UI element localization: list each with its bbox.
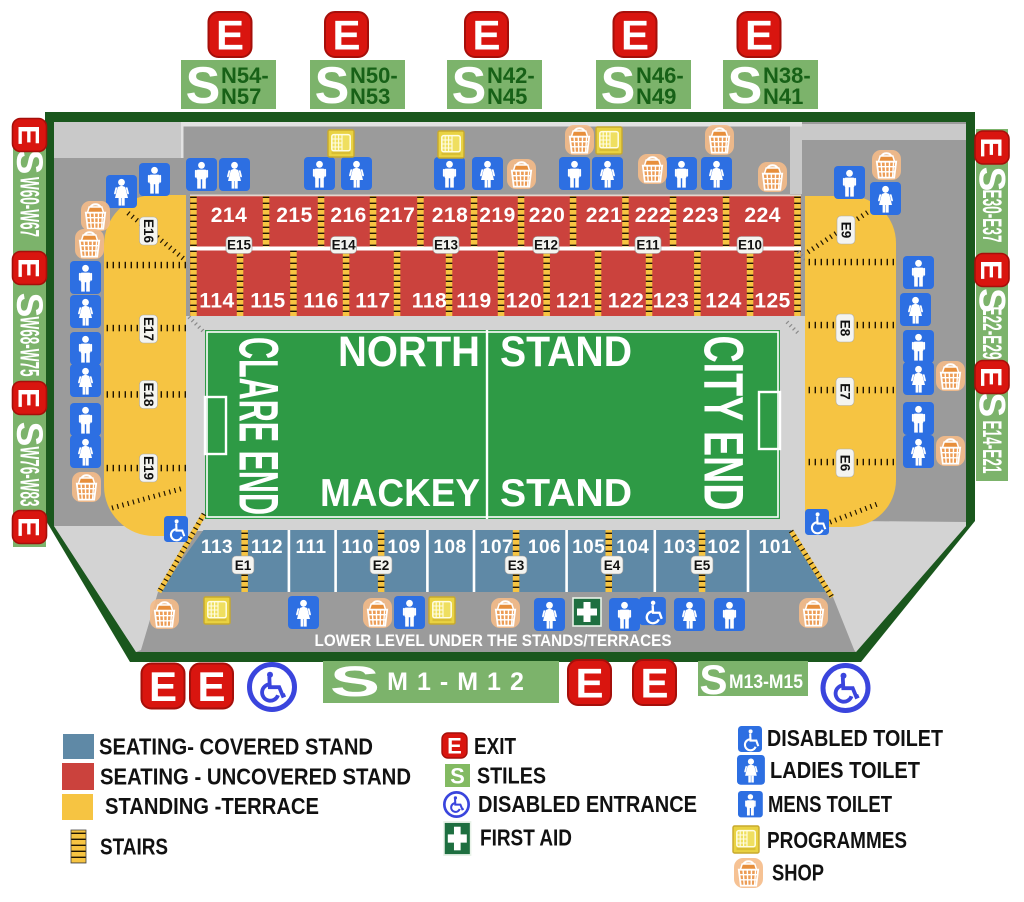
svg-text:E5: E5: [694, 558, 711, 573]
svg-text:N41: N41: [763, 84, 803, 109]
svg-text:PROGRAMMES: PROGRAMMES: [767, 827, 907, 853]
svg-text:W68-W75: W68-W75: [15, 317, 45, 377]
svg-text:W60-W67: W60-W67: [15, 177, 45, 237]
svg-text:S: S: [452, 57, 487, 115]
svg-text:122: 122: [608, 290, 645, 313]
svg-text:S: S: [972, 167, 1013, 192]
svg-text:N57: N57: [221, 84, 261, 109]
svg-text:215: 215: [276, 204, 313, 227]
svg-text:DISABLED ENTRANCE: DISABLED ENTRANCE: [478, 791, 697, 817]
svg-text:W76-W83: W76-W83: [15, 447, 45, 507]
svg-text:220: 220: [529, 204, 566, 227]
svg-text:LOWER LEVEL UNDER THE STANDS/: LOWER LEVEL UNDER THE STANDS/TERRACES: [315, 632, 672, 650]
svg-text:S: S: [9, 293, 50, 318]
svg-text:S: S: [315, 57, 350, 115]
svg-text:112: 112: [251, 537, 283, 558]
svg-text:113: 113: [201, 537, 233, 558]
svg-text:219: 219: [479, 204, 516, 227]
svg-text:E22-E29: E22-E29: [977, 307, 1007, 360]
svg-text:S: S: [699, 656, 727, 703]
svg-text:117: 117: [355, 290, 390, 313]
svg-text:E7: E7: [838, 383, 853, 400]
svg-text:101: 101: [759, 537, 792, 558]
svg-text:STAND: STAND: [500, 329, 632, 376]
svg-text:123: 123: [653, 290, 690, 313]
svg-text:E15: E15: [227, 238, 252, 253]
svg-text:E8: E8: [838, 320, 853, 337]
svg-text:STILES: STILES: [477, 763, 546, 789]
svg-text:S: S: [972, 392, 1013, 417]
svg-text:S: S: [9, 422, 50, 447]
svg-text:MENS TOILET: MENS TOILET: [768, 791, 892, 817]
svg-text:E11: E11: [636, 238, 660, 253]
svg-text:SEATING - UNCOVERED STAND: SEATING - UNCOVERED STAND: [100, 764, 411, 790]
svg-text:E17: E17: [141, 317, 156, 341]
svg-text:NORTH: NORTH: [338, 329, 480, 376]
svg-text:124: 124: [705, 290, 742, 313]
svg-text:109: 109: [387, 537, 420, 558]
svg-text:118: 118: [412, 290, 447, 313]
svg-text:102: 102: [707, 537, 740, 558]
svg-text:217: 217: [379, 204, 416, 227]
svg-text:N45: N45: [487, 84, 527, 109]
svg-text:104: 104: [616, 537, 649, 558]
svg-text:121: 121: [556, 290, 593, 313]
svg-text:DISABLED TOILET: DISABLED TOILET: [767, 725, 943, 751]
svg-text:N49: N49: [636, 84, 676, 109]
svg-text:N53: N53: [350, 84, 390, 109]
svg-text:E6: E6: [838, 455, 853, 472]
svg-text:E9: E9: [839, 222, 854, 239]
svg-text:115: 115: [250, 290, 285, 313]
svg-text:224: 224: [744, 204, 781, 227]
svg-text:222: 222: [635, 204, 672, 227]
svg-text:E13: E13: [434, 238, 459, 253]
svg-text:E2: E2: [373, 558, 390, 573]
svg-text:223: 223: [682, 204, 719, 227]
svg-text:E: E: [447, 734, 462, 759]
svg-text:STAIRS: STAIRS: [100, 834, 168, 860]
svg-text:105: 105: [572, 537, 605, 558]
svg-text:SHOP: SHOP: [772, 860, 824, 886]
svg-text:125: 125: [754, 290, 791, 313]
svg-text:111: 111: [295, 537, 326, 558]
svg-text:S: S: [601, 57, 636, 115]
svg-text:E12: E12: [534, 238, 558, 253]
svg-text:EXIT: EXIT: [474, 733, 516, 759]
svg-text:116: 116: [303, 290, 338, 313]
svg-text:E1: E1: [235, 558, 252, 573]
svg-text:E3: E3: [508, 558, 525, 573]
svg-text:FIRST AID: FIRST AID: [480, 825, 572, 851]
svg-text:E14-E21: E14-E21: [977, 421, 1007, 474]
svg-text:S: S: [330, 657, 380, 705]
svg-text:110: 110: [342, 537, 374, 558]
svg-text:STAND: STAND: [500, 472, 632, 515]
svg-text:MACKEY: MACKEY: [320, 472, 480, 515]
svg-text:108: 108: [433, 537, 466, 558]
svg-text:218: 218: [432, 204, 469, 227]
svg-text:114: 114: [199, 290, 234, 313]
svg-text:CITY END: CITY END: [693, 336, 756, 511]
svg-text:S: S: [728, 57, 763, 115]
svg-text:E14: E14: [332, 238, 357, 253]
svg-text:E16: E16: [141, 219, 156, 244]
svg-text:STANDING -TERRACE: STANDING -TERRACE: [105, 793, 319, 819]
svg-text:E18: E18: [141, 382, 156, 407]
svg-text:LADIES TOILET: LADIES TOILET: [770, 757, 920, 783]
svg-text:M13-M15: M13-M15: [729, 672, 803, 693]
svg-text:S: S: [9, 150, 50, 175]
svg-text:M1-M12: M1-M12: [387, 668, 533, 696]
svg-text:E19: E19: [141, 456, 156, 480]
svg-text:106: 106: [528, 537, 561, 558]
svg-text:CLARE END: CLARE END: [228, 337, 291, 515]
svg-text:119: 119: [456, 290, 491, 313]
svg-text:216: 216: [330, 204, 367, 227]
svg-text:SEATING- COVERED STAND: SEATING- COVERED STAND: [99, 734, 373, 760]
svg-text:107: 107: [480, 537, 513, 558]
svg-text:221: 221: [586, 204, 623, 227]
svg-text:S: S: [450, 764, 465, 789]
svg-text:E10: E10: [738, 238, 762, 253]
svg-text:103: 103: [663, 537, 696, 558]
svg-text:214: 214: [211, 204, 248, 227]
svg-text:S: S: [186, 57, 221, 115]
svg-text:E30-E37: E30-E37: [977, 190, 1007, 243]
svg-text:120: 120: [506, 290, 543, 313]
svg-text:E4: E4: [604, 558, 621, 573]
